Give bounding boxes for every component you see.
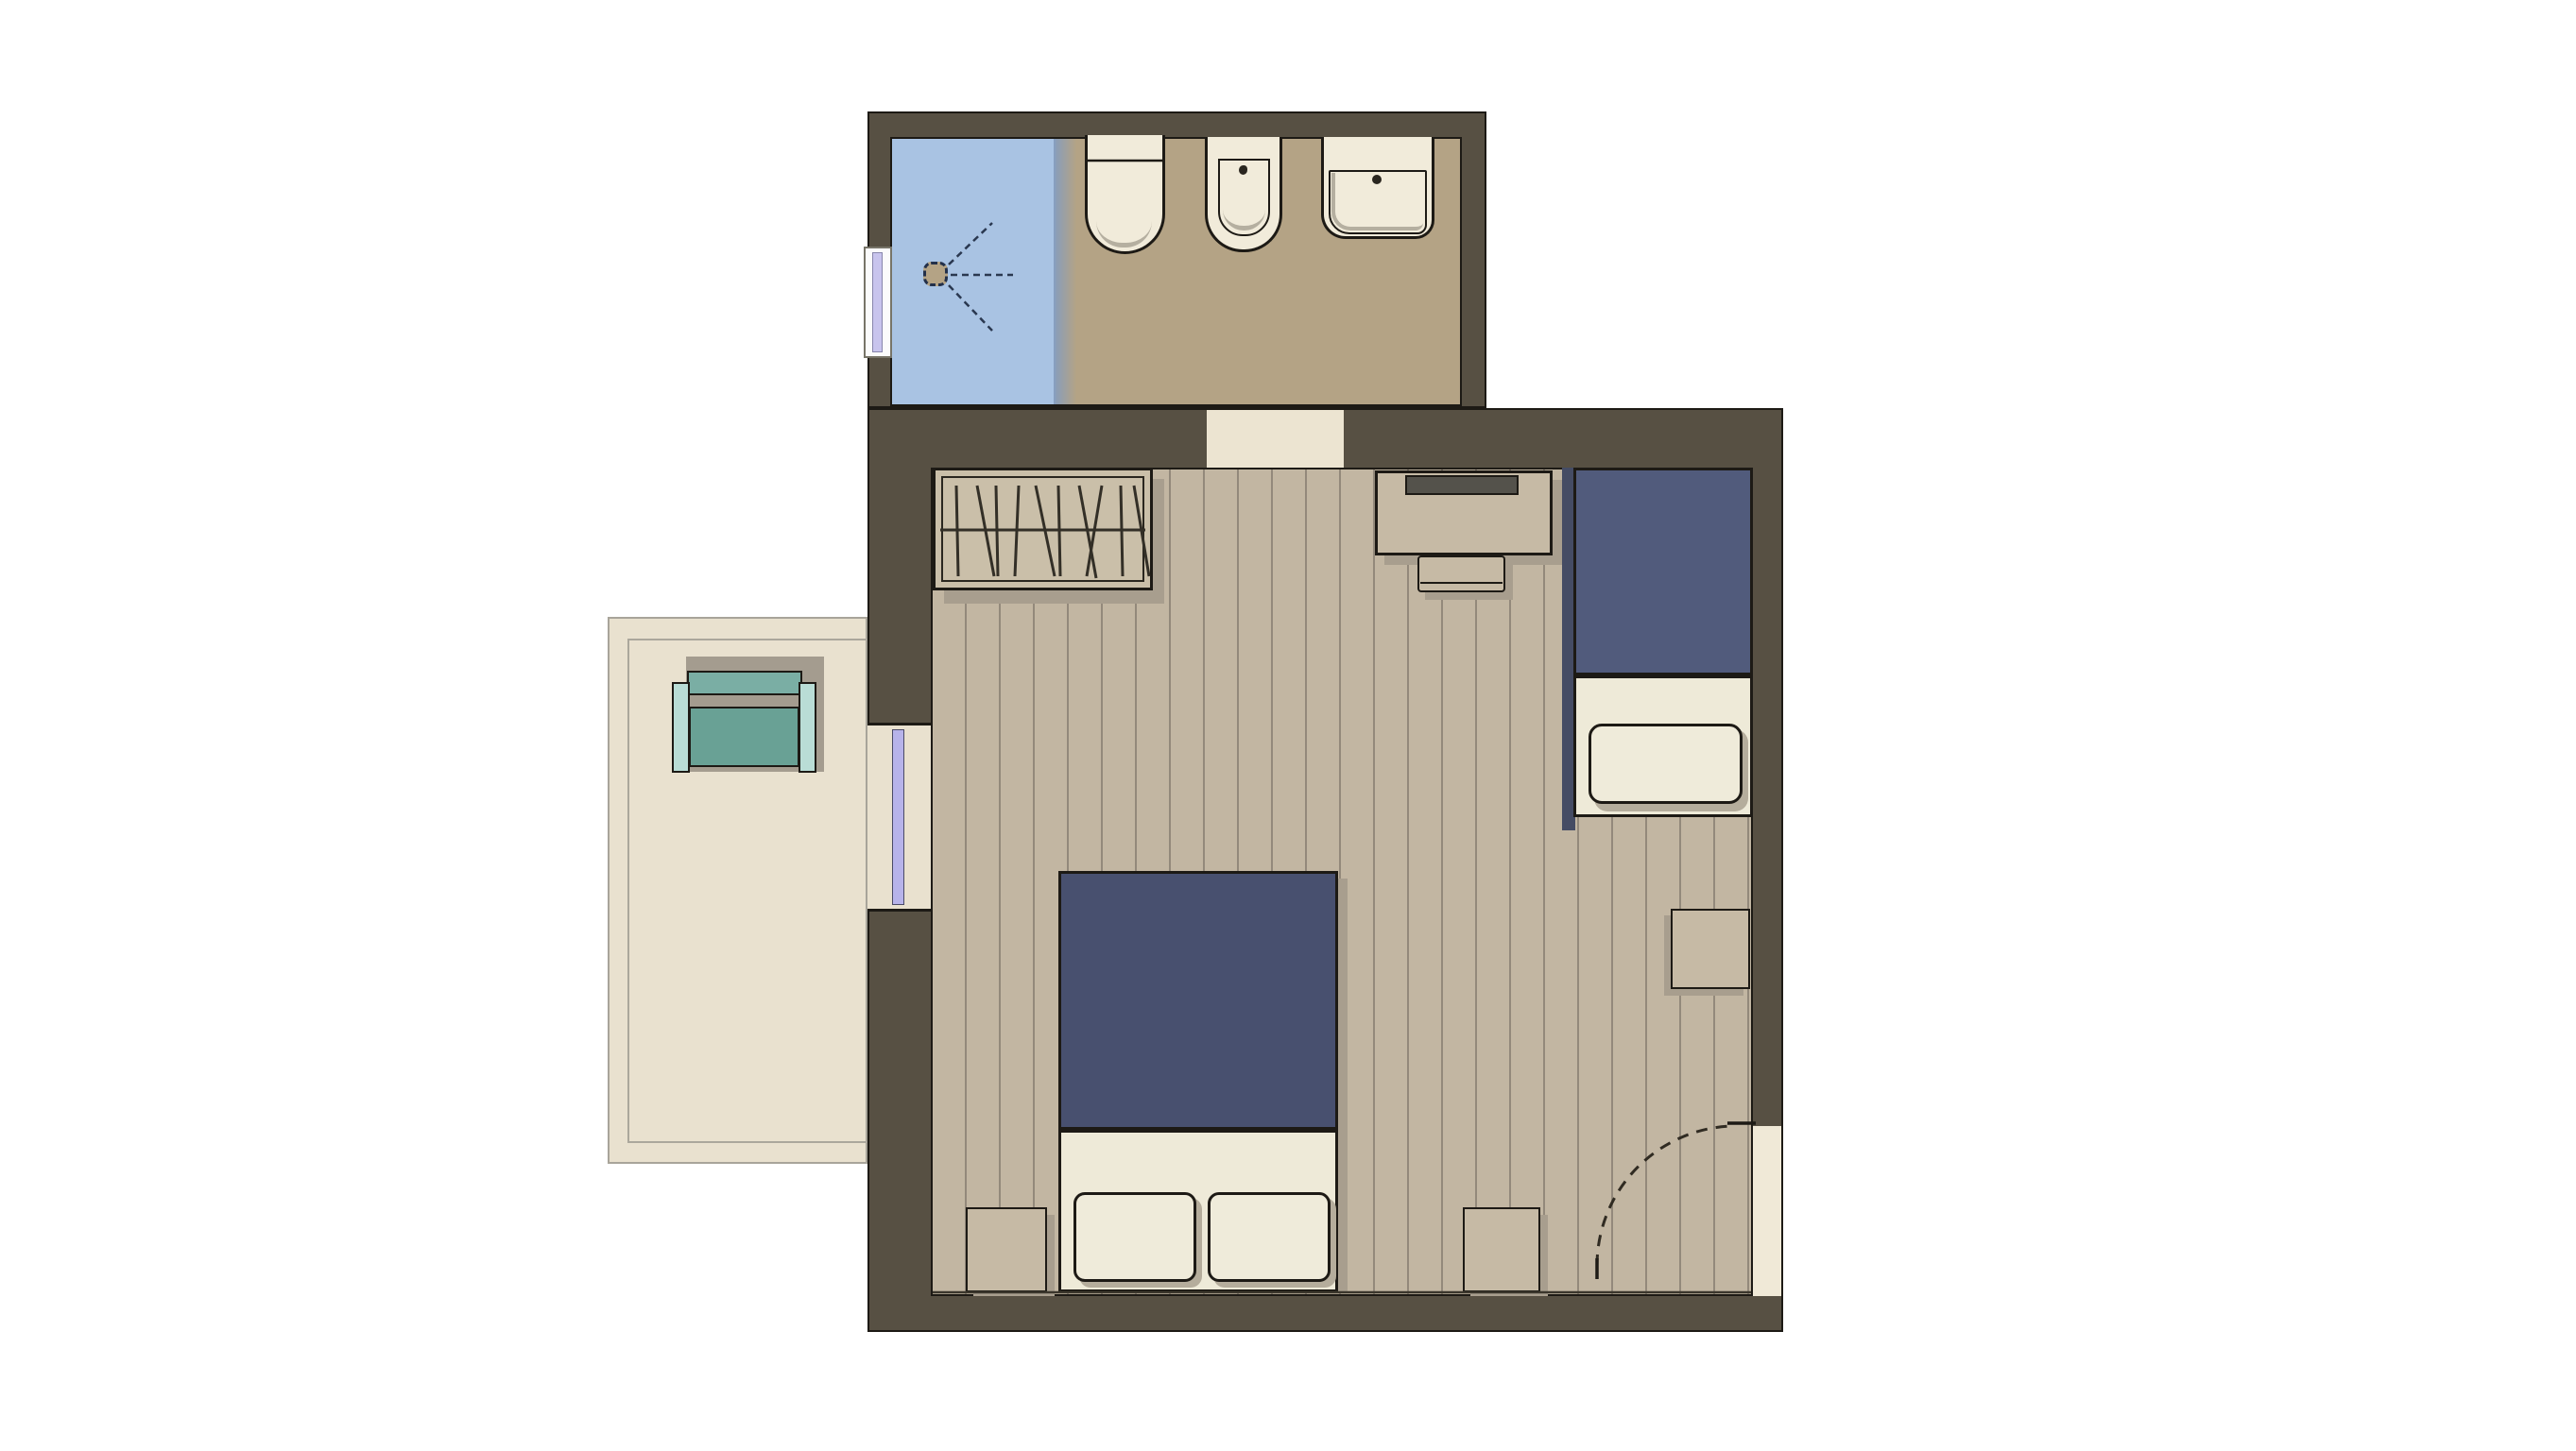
single-bed-duvet (1573, 468, 1753, 675)
double-bed-duvet (1058, 871, 1338, 1130)
balcony-chair-armrest-left (672, 682, 690, 773)
laptop (1405, 475, 1519, 495)
shower-edge-shade (1054, 139, 1076, 404)
balcony-chair-seat (689, 707, 799, 767)
shower-head (923, 262, 948, 286)
double-bed-pillow-right (1208, 1192, 1331, 1282)
single-bed-pillow (1589, 724, 1743, 804)
shower-floor (890, 137, 1056, 406)
wardrobe-inner-line (941, 476, 1144, 582)
bathroom-doorway-threshold (1207, 410, 1344, 468)
balcony-door-glass (892, 729, 904, 905)
nightstand-left (966, 1207, 1047, 1292)
balcony-chair-armrest-right (799, 682, 816, 773)
sink-faucet-dot (1372, 175, 1382, 184)
double-bed-shadow-strip (1338, 879, 1348, 1292)
double-bed-pillow-left (1073, 1192, 1196, 1282)
wall-nightstand (1671, 909, 1750, 989)
floor-plan-canvas (0, 0, 2576, 1451)
balcony-chair-backrest (687, 671, 802, 695)
entry-door-opening (1753, 1126, 1781, 1296)
desk-chair (1417, 555, 1505, 592)
bidet-drain-dot (1239, 165, 1247, 175)
balcony-chair-mid-band (689, 695, 800, 707)
nightstand-right (1463, 1207, 1540, 1292)
bathroom-window-glass (872, 252, 883, 352)
